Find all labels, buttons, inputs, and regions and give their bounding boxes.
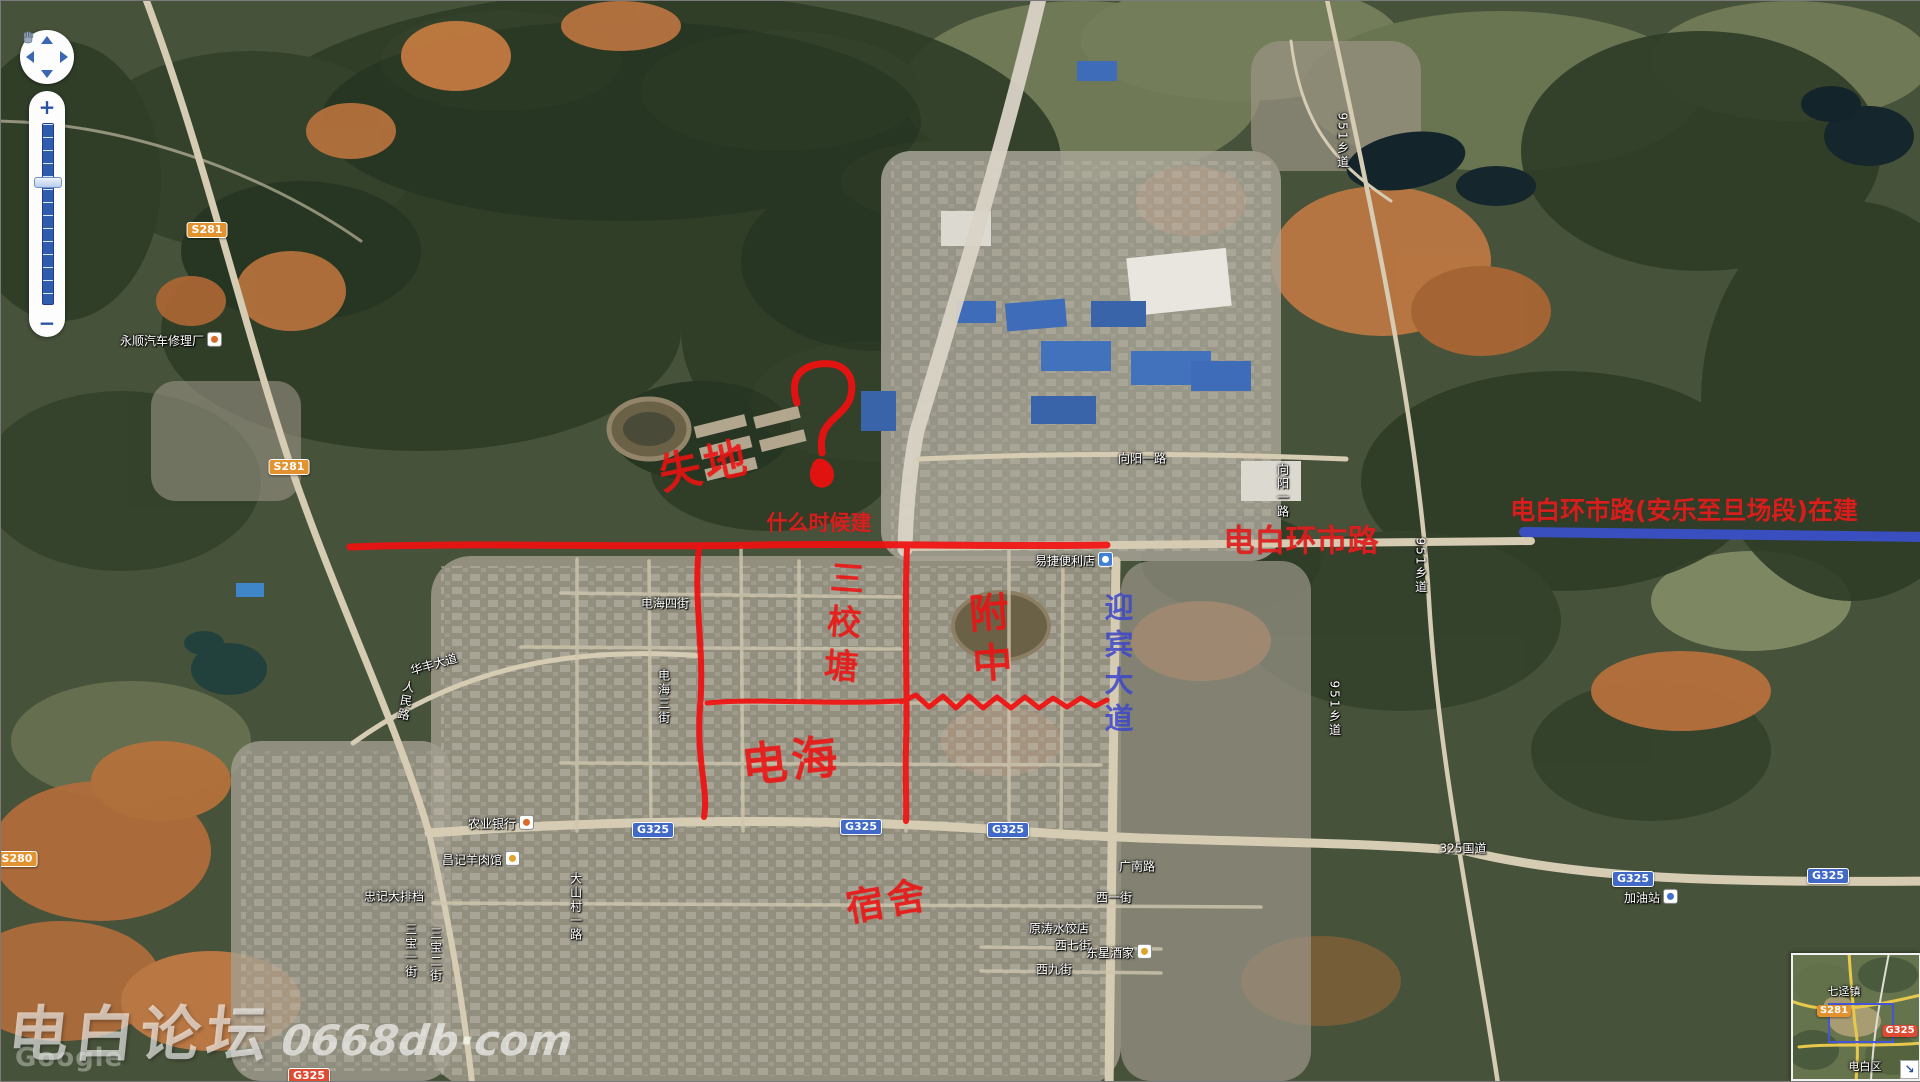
- red-line-huanshi-existing: [350, 544, 1107, 547]
- pan-down-arrow-icon[interactable]: [41, 70, 53, 78]
- overview-minimap[interactable]: 七迳镇 电白区 S281 G325 ↘: [1791, 953, 1920, 1081]
- red-question-mark-dot: [813, 462, 830, 484]
- pan-up-arrow-icon[interactable]: [41, 36, 53, 44]
- red-line-vertical-east: [906, 547, 907, 821]
- minimap-s281-badge: S281: [1817, 1005, 1851, 1017]
- annotation-ink-layer: [1, 1, 1920, 1081]
- minimap-resize-handle[interactable]: ↘: [1900, 1060, 1919, 1079]
- pan-left-arrow-icon[interactable]: [26, 51, 34, 63]
- pan-hand-icon[interactable]: [20, 30, 36, 46]
- red-line-horizontal-south: [707, 701, 901, 703]
- zoom-out-button[interactable]: −: [29, 313, 65, 333]
- pan-control[interactable]: [20, 30, 74, 84]
- zoom-slider-handle[interactable]: [34, 177, 62, 188]
- red-question-mark: [794, 364, 851, 453]
- red-line-horizontal-south-squiggle: [901, 695, 1107, 708]
- zoom-in-button[interactable]: +: [29, 97, 65, 117]
- zoom-slider-track[interactable]: [42, 123, 54, 305]
- blue-line-planned-road: [1524, 532, 1920, 537]
- pan-right-arrow-icon[interactable]: [60, 51, 68, 63]
- minimap-g325-badge: G325: [1882, 1025, 1917, 1037]
- satellite-map-canvas[interactable]: 永顺汽车修理厂S281S281S280华丰大道人民路电海四街电海三街农业银行昌记…: [0, 0, 1920, 1082]
- zoom-control[interactable]: + −: [29, 91, 65, 337]
- red-line-vertical-west: [697, 547, 705, 817]
